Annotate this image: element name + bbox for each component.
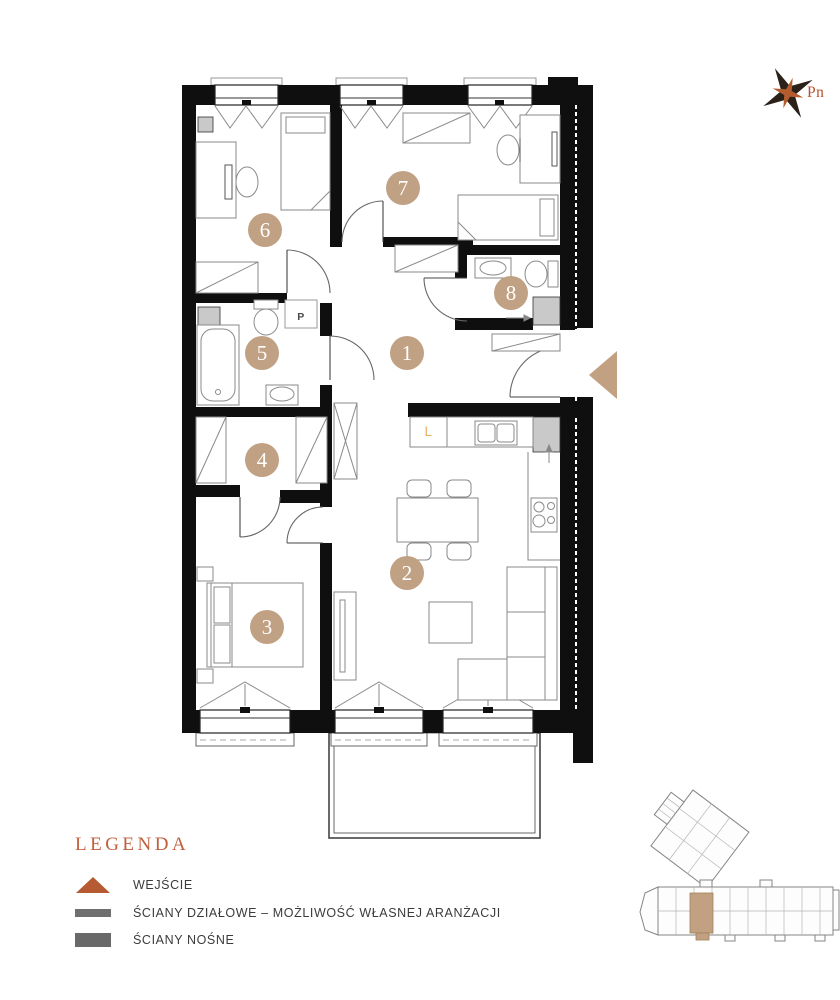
entrance-icon (76, 877, 110, 893)
room-badge-1: 1 (390, 336, 424, 370)
legend-item-label: ŚCIANY DZIAŁOWE – MOŻLIWOŚĆ WŁASNEJ ARAN… (133, 906, 501, 920)
legend-item-label: ŚCIANY NOŚNE (133, 933, 234, 947)
washing-machine-label: P (285, 303, 317, 331)
room-badge-6: 6 (248, 213, 282, 247)
room-badge-8: 8 (494, 276, 528, 310)
building-location-map (638, 780, 839, 941)
floor-plan-page: 1 2 3 4 5 6 7 8 P L Pn LEGENDA WEJŚCIE Ś… (0, 0, 840, 1000)
legend-item-entrance: WEJŚCIE (75, 877, 535, 893)
legend-item-load-bearing-walls: ŚCIANY NOŚNE (75, 933, 535, 947)
compass-north-label: Pn (807, 84, 824, 102)
entrance-arrow-icon (589, 351, 617, 399)
fridge-label: L (410, 417, 447, 447)
partition-wall-icon (75, 909, 111, 917)
room-badge-5: 5 (245, 336, 279, 370)
legend-item-partition-walls: ŚCIANY DZIAŁOWE – MOŻLIWOŚĆ WŁASNEJ ARAN… (75, 906, 535, 920)
legend: LEGENDA WEJŚCIE ŚCIANY DZIAŁOWE – MOŻLIW… (75, 834, 535, 960)
room-badge-4: 4 (245, 443, 279, 477)
load-bearing-wall-icon (75, 933, 111, 947)
room-badge-3: 3 (250, 610, 284, 644)
room-badge-7: 7 (386, 171, 420, 205)
legend-title: LEGENDA (75, 834, 535, 856)
highlighted-apartment (690, 893, 713, 940)
balcony (329, 733, 540, 838)
room-badge-2: 2 (390, 556, 424, 590)
legend-item-label: WEJŚCIE (133, 878, 193, 892)
